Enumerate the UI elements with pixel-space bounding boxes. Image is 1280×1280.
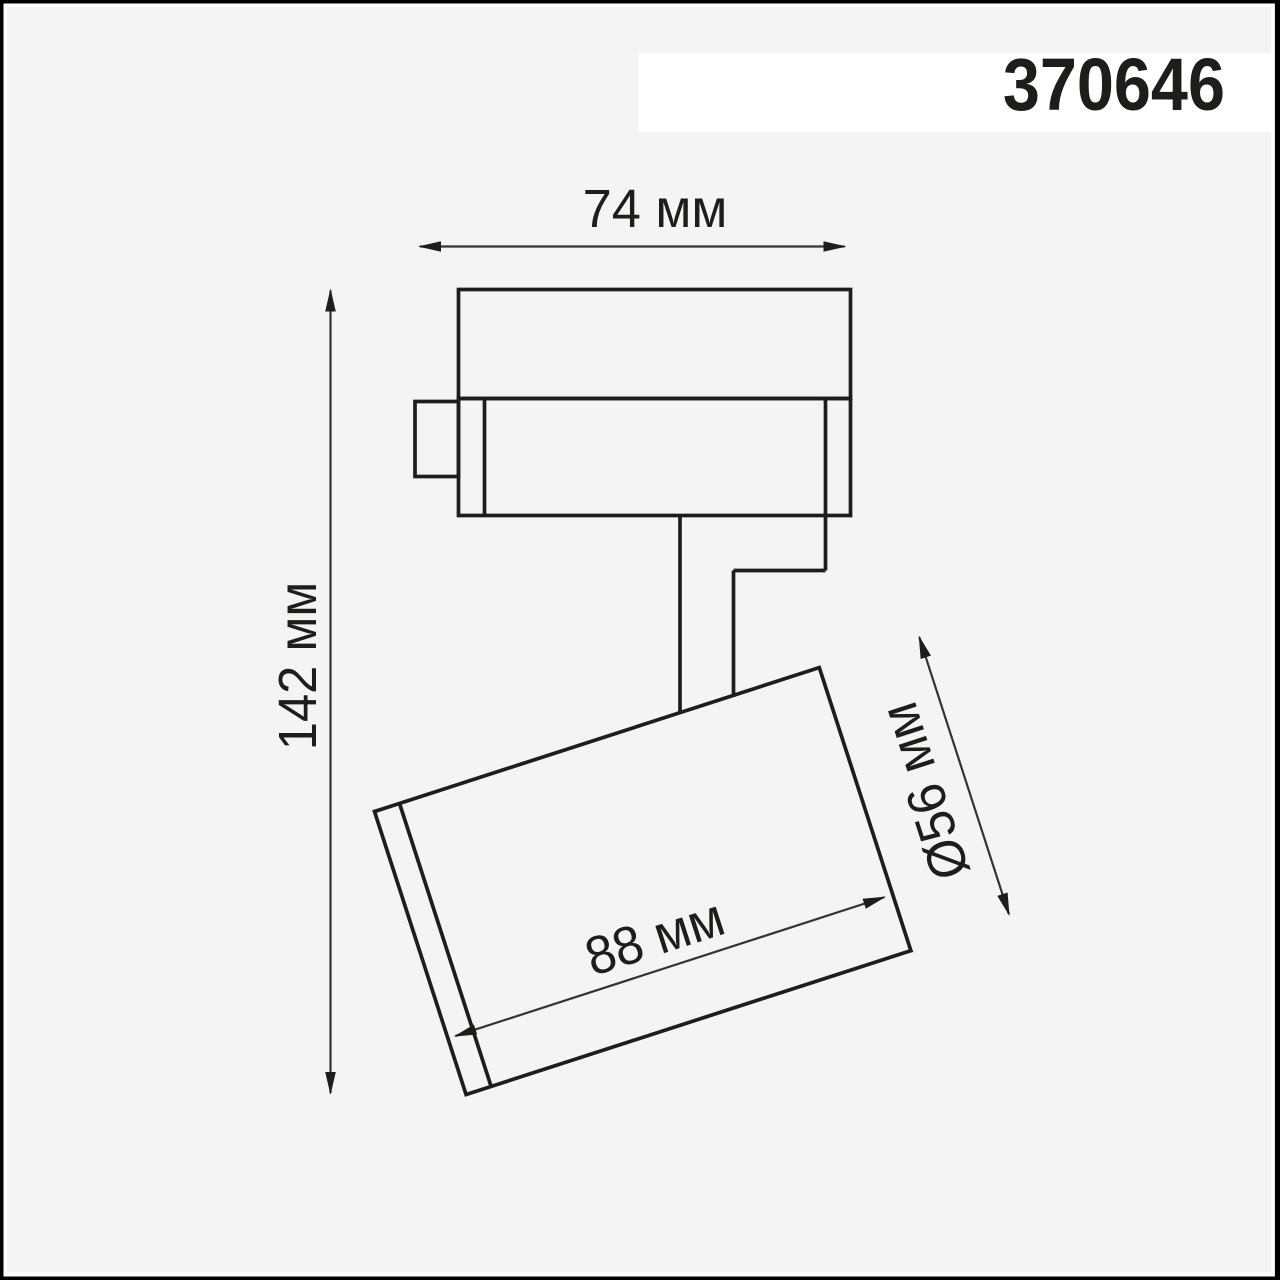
svg-text:74 мм: 74 мм <box>583 179 728 239</box>
svg-text:370646: 370646 <box>1003 43 1225 126</box>
svg-text:142 мм: 142 мм <box>268 582 328 751</box>
